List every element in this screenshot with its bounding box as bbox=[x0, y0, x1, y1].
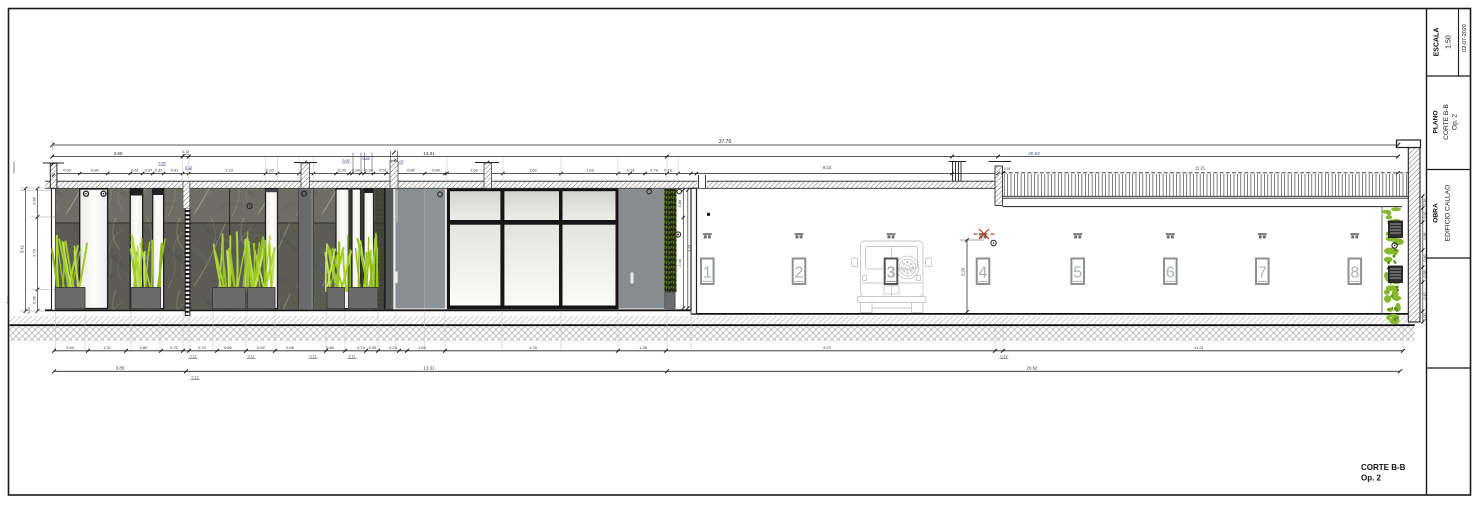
svg-text:0.66: 0.66 bbox=[32, 196, 37, 205]
svg-text:13.31: 13.31 bbox=[424, 366, 436, 371]
svg-text:CORTE B-B: CORTE B-B bbox=[1443, 104, 1450, 140]
svg-text:0.61: 0.61 bbox=[131, 168, 140, 173]
svg-text:1.62: 1.62 bbox=[529, 168, 538, 173]
svg-text:1.62: 1.62 bbox=[586, 168, 595, 173]
svg-text:2.76: 2.76 bbox=[32, 248, 37, 257]
svg-text:0.34: 0.34 bbox=[365, 168, 374, 173]
svg-text:0.98: 0.98 bbox=[286, 345, 295, 350]
svg-text:9.23: 9.23 bbox=[823, 165, 832, 170]
svg-text:11.21: 11.21 bbox=[1194, 345, 1204, 350]
svg-text:11.21: 11.21 bbox=[1195, 166, 1206, 171]
svg-text:1:50: 1:50 bbox=[1446, 35, 1453, 49]
svg-text:7: 7 bbox=[1258, 264, 1267, 281]
svg-text:0.02: 0.02 bbox=[342, 159, 349, 163]
svg-text:OBRA: OBRA bbox=[1433, 203, 1440, 223]
svg-text:0.32: 0.32 bbox=[155, 168, 164, 173]
svg-text:0.18: 0.18 bbox=[664, 168, 673, 173]
svg-text:Op. 2: Op. 2 bbox=[1452, 114, 1459, 130]
svg-text:0.12: 0.12 bbox=[192, 376, 199, 380]
svg-text:5: 5 bbox=[1073, 264, 1082, 281]
svg-text:Op. 2: Op. 2 bbox=[1361, 474, 1382, 483]
svg-text:37.70: 37.70 bbox=[719, 139, 732, 145]
svg-text:0.11: 0.11 bbox=[349, 355, 356, 359]
svg-text:PLANO: PLANO bbox=[1433, 110, 1440, 133]
svg-text:0.26: 0.26 bbox=[158, 162, 165, 166]
svg-text:0.18: 0.18 bbox=[1001, 355, 1008, 359]
svg-text:0.51: 0.51 bbox=[379, 168, 388, 173]
svg-text:0.34: 0.34 bbox=[352, 168, 361, 173]
svg-text:1: 1 bbox=[703, 264, 712, 281]
svg-text:0.13: 0.13 bbox=[182, 150, 189, 154]
svg-text:9.23: 9.23 bbox=[823, 345, 832, 350]
svg-text:0.92: 0.92 bbox=[257, 345, 266, 350]
svg-text:0.13: 0.13 bbox=[362, 156, 369, 160]
svg-text:20.62: 20.62 bbox=[1027, 366, 1039, 371]
svg-text:8: 8 bbox=[1350, 264, 1359, 281]
svg-text:0.70: 0.70 bbox=[170, 345, 179, 350]
svg-text:0.80: 0.80 bbox=[407, 168, 416, 173]
svg-text:0.10: 0.10 bbox=[27, 307, 31, 313]
svg-text:3: 3 bbox=[887, 264, 896, 281]
svg-text:2.13: 2.13 bbox=[225, 168, 234, 173]
svg-text:1.54: 1.54 bbox=[418, 345, 427, 350]
svg-text:0.91: 0.91 bbox=[171, 168, 180, 173]
svg-text:4.78: 4.78 bbox=[529, 345, 538, 350]
svg-text:EDIFICIO CALLAO: EDIFICIO CALLAO bbox=[1445, 185, 1452, 241]
svg-text:0.80: 0.80 bbox=[326, 345, 335, 350]
svg-text:0.32: 0.32 bbox=[266, 168, 275, 173]
svg-text:0.11: 0.11 bbox=[248, 355, 255, 359]
svg-text:2.46: 2.46 bbox=[677, 259, 682, 267]
svg-text:0.80: 0.80 bbox=[91, 168, 100, 173]
svg-text:0.12: 0.12 bbox=[190, 355, 197, 359]
svg-text:0.31: 0.31 bbox=[627, 168, 636, 173]
svg-text:2.20: 2.20 bbox=[961, 267, 966, 276]
svg-text:02-07-2020: 02-07-2020 bbox=[1462, 24, 1468, 52]
svg-text:0.74: 0.74 bbox=[357, 345, 366, 350]
svg-text:0.80: 0.80 bbox=[224, 345, 233, 350]
svg-text:1.38: 1.38 bbox=[639, 345, 648, 350]
svg-text:CORTE B-B: CORTE B-B bbox=[1361, 463, 1406, 472]
svg-text:0.26: 0.26 bbox=[369, 345, 378, 350]
svg-text:4: 4 bbox=[979, 264, 988, 281]
svg-text:1.62: 1.62 bbox=[470, 168, 479, 173]
svg-text:3.60: 3.60 bbox=[114, 151, 123, 156]
svg-text:0.37: 0.37 bbox=[145, 168, 154, 173]
svg-text:3.51: 3.51 bbox=[687, 244, 692, 252]
svg-text:0.69: 0.69 bbox=[63, 168, 72, 173]
svg-text:0.21: 0.21 bbox=[310, 355, 317, 359]
svg-text:0.39: 0.39 bbox=[338, 168, 347, 173]
svg-text:20.62: 20.62 bbox=[1028, 151, 1040, 156]
svg-text:ESCALA: ESCALA bbox=[1434, 28, 1441, 57]
svg-text:0.66: 0.66 bbox=[32, 295, 37, 304]
svg-text:3.10: 3.10 bbox=[7, 296, 11, 303]
svg-text:0.79: 0.79 bbox=[650, 168, 659, 173]
svg-text:0.70: 0.70 bbox=[198, 345, 207, 350]
svg-text:0.93: 0.93 bbox=[66, 345, 75, 350]
svg-text:1.32: 1.32 bbox=[103, 345, 112, 350]
svg-text:0.18: 0.18 bbox=[1004, 167, 1011, 171]
svg-text:3.41: 3.41 bbox=[20, 244, 25, 253]
svg-text:2: 2 bbox=[795, 264, 804, 281]
svg-text:0.66: 0.66 bbox=[677, 200, 682, 208]
svg-text:0.24: 0.24 bbox=[389, 345, 398, 350]
svg-text:0.80: 0.80 bbox=[140, 345, 149, 350]
svg-text:13.31: 13.31 bbox=[423, 151, 435, 156]
svg-text:0.80: 0.80 bbox=[432, 168, 441, 173]
svg-text:3.85: 3.85 bbox=[116, 366, 125, 371]
svg-text:6: 6 bbox=[1166, 264, 1175, 281]
